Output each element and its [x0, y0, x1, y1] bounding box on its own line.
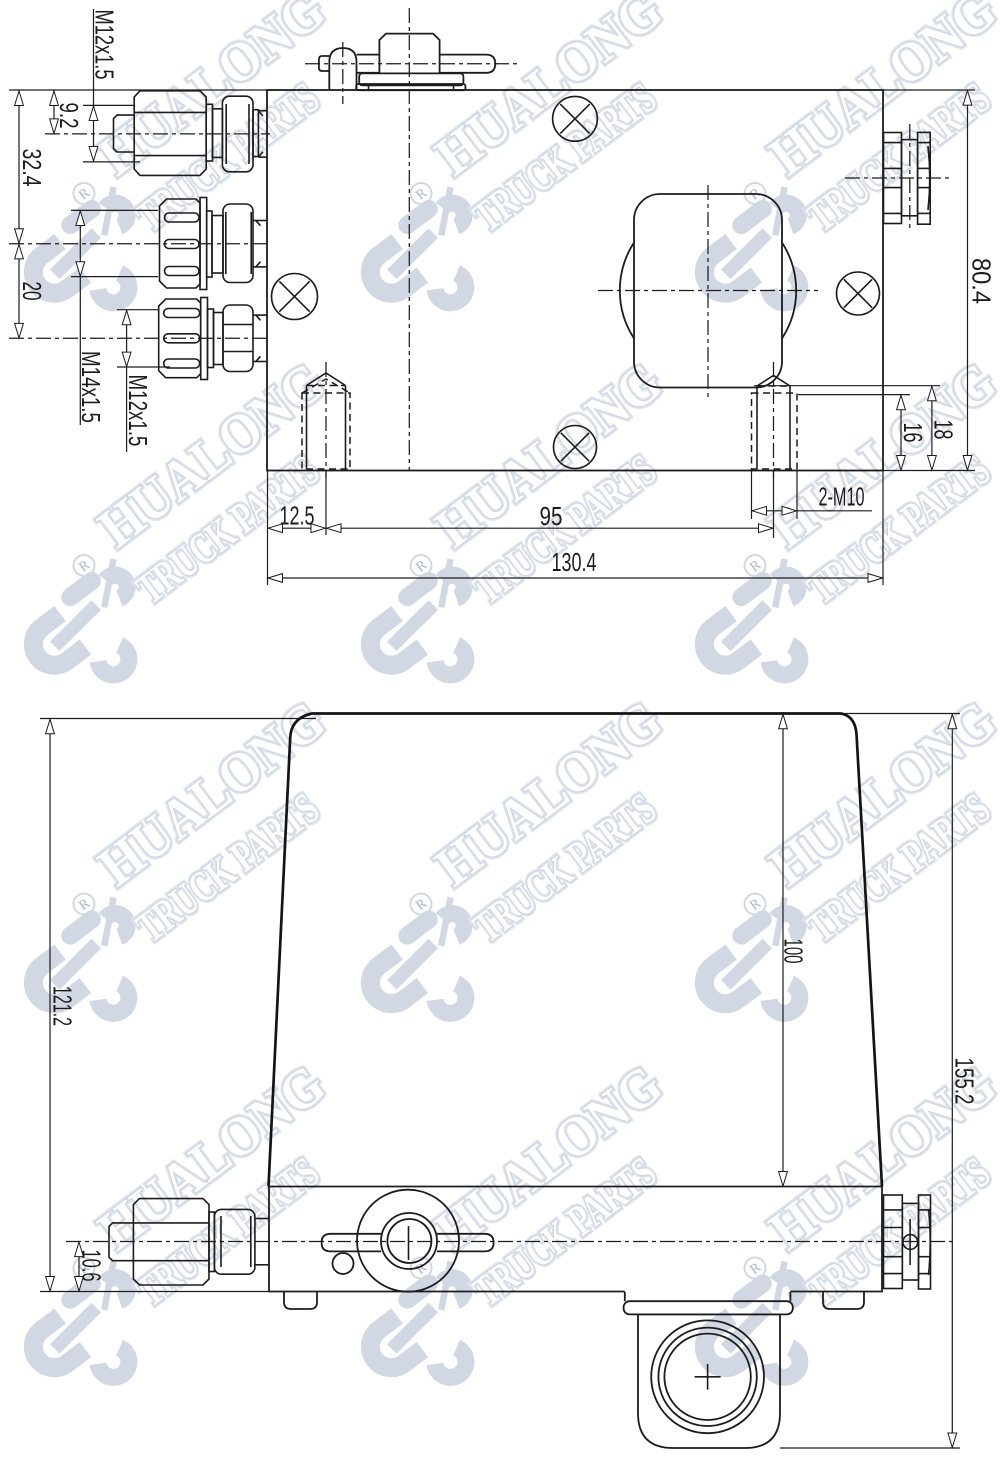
svg-text:10.6: 10.6 — [77, 1250, 107, 1282]
svg-text:121.2: 121.2 — [48, 986, 78, 1026]
svg-text:130.4: 130.4 — [552, 547, 597, 577]
svg-text:95: 95 — [540, 501, 563, 531]
svg-text:M12x1.5: M12x1.5 — [123, 375, 153, 447]
svg-text:20: 20 — [17, 282, 47, 301]
svg-text:32.4: 32.4 — [17, 149, 47, 187]
svg-text:M14x1.5: M14x1.5 — [76, 351, 106, 423]
svg-text:2-M10: 2-M10 — [819, 482, 865, 512]
svg-text:80.4: 80.4 — [967, 258, 997, 304]
svg-text:M12x1.5: M12x1.5 — [90, 10, 120, 80]
svg-text:155.2: 155.2 — [950, 1058, 980, 1105]
svg-text:100: 100 — [779, 939, 809, 964]
svg-text:18: 18 — [929, 420, 959, 440]
svg-text:9.2: 9.2 — [54, 103, 84, 129]
svg-text:12.5: 12.5 — [280, 501, 315, 531]
svg-text:16: 16 — [898, 423, 928, 443]
